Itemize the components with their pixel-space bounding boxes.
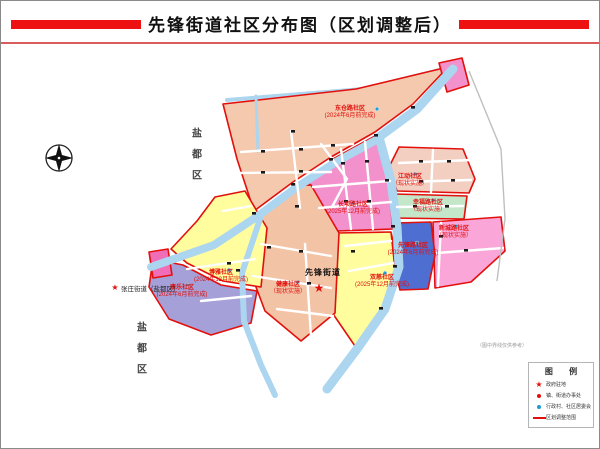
header-divider xyxy=(1,42,599,44)
region-label-shuangci: 双慈社区 (2025年12月前完成) xyxy=(355,275,409,289)
region-label-boya: 博雅社区 (2024年12月前完成) xyxy=(194,270,248,284)
map-page: 先锋街道社区分布图（区划调整后） xyxy=(0,0,600,449)
region-label-xinchenglu: 新城路社区 （现状实施） xyxy=(436,226,472,240)
region-label-xingfulu: 幸福路社区 （现状实施） xyxy=(410,200,446,214)
legend-item-adjust-range: 区划调整范围 xyxy=(532,412,590,423)
legend-title: 图 例 xyxy=(532,366,590,377)
road xyxy=(239,172,331,173)
region-label-dongcanglu: 东仓路社区 (2024年6月前完成) xyxy=(325,106,376,120)
neighbor-star-icon: ★ xyxy=(111,284,118,292)
legend-box: 图 例 ★ 政府驻地 镇、街道办事处 行政村、社区居委会 区划调整范围 xyxy=(528,362,594,428)
region-label-changbalu: 长坝路社区 (2025年12月前完成) xyxy=(326,202,380,216)
red-dot-icon xyxy=(537,394,541,398)
stream-north xyxy=(256,96,258,151)
region-label-jiankang: 健康社区 （现状实施） xyxy=(270,282,306,296)
region-label-jiangdong: 江动社区 （现状实施） xyxy=(392,174,428,188)
map-note: （图中界线仅供参考） xyxy=(477,342,527,349)
compass-icon xyxy=(45,144,73,172)
legend-item-government: ★ 政府驻地 xyxy=(532,379,590,390)
adjacent-district-label-bottom: 盐都区 xyxy=(133,322,148,385)
adjacent-district-label-top: 盐都区 xyxy=(188,128,203,191)
legend-item-street-office: 镇、街道办事处 xyxy=(532,390,590,401)
region-label-xianfenglu: 先锋路社区 (2024年6月前完成) xyxy=(388,243,439,257)
legend-item-community: 行政村、社区居委会 xyxy=(532,401,590,412)
blue-dot-icon xyxy=(537,405,541,409)
neighbor-street-label: 张庄街道（盐都区） xyxy=(121,283,180,293)
red-line-icon xyxy=(533,417,546,419)
red-star-icon: ★ xyxy=(535,381,542,389)
street-office-label: 先锋街道 xyxy=(305,268,341,278)
district-map xyxy=(1,45,600,449)
title-bar-right-rule xyxy=(459,20,589,29)
government-star-icon: ★ xyxy=(314,282,325,294)
